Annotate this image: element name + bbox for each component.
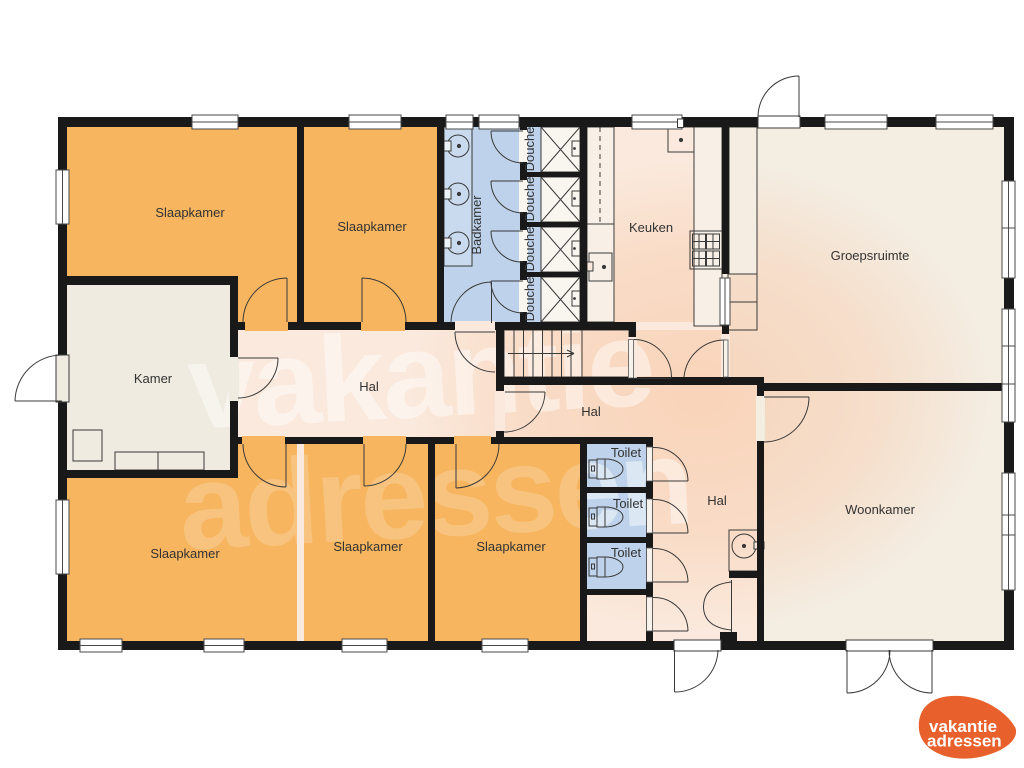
svg-text:Slaapkamer: Slaapkamer [476,539,546,554]
svg-text:Toilet: Toilet [611,545,642,560]
svg-text:Toilet: Toilet [611,445,642,460]
svg-text:Slaapkamer: Slaapkamer [150,546,220,561]
svg-text:Toilet: Toilet [613,496,644,511]
svg-text:Badkamer: Badkamer [469,195,484,255]
svg-text:adressen: adressen [927,732,1002,751]
svg-text:Hal: Hal [707,493,727,508]
svg-text:Groepsruimte: Groepsruimte [831,248,910,263]
svg-text:Keuken: Keuken [629,220,673,235]
svg-text:Woonkamer: Woonkamer [845,502,916,517]
svg-text:Slaapkamer: Slaapkamer [155,205,225,220]
svg-text:Douche: Douche [522,277,537,322]
svg-text:Hal: Hal [581,404,601,419]
svg-text:Hal: Hal [359,379,379,394]
svg-text:Slaapkamer: Slaapkamer [337,219,407,234]
svg-text:Slaapkamer: Slaapkamer [333,539,403,554]
svg-text:Douche: Douche [522,227,537,272]
svg-text:Kamer: Kamer [134,371,173,386]
svg-text:Douche: Douche [522,127,537,172]
svg-text:Douche: Douche [522,177,537,222]
